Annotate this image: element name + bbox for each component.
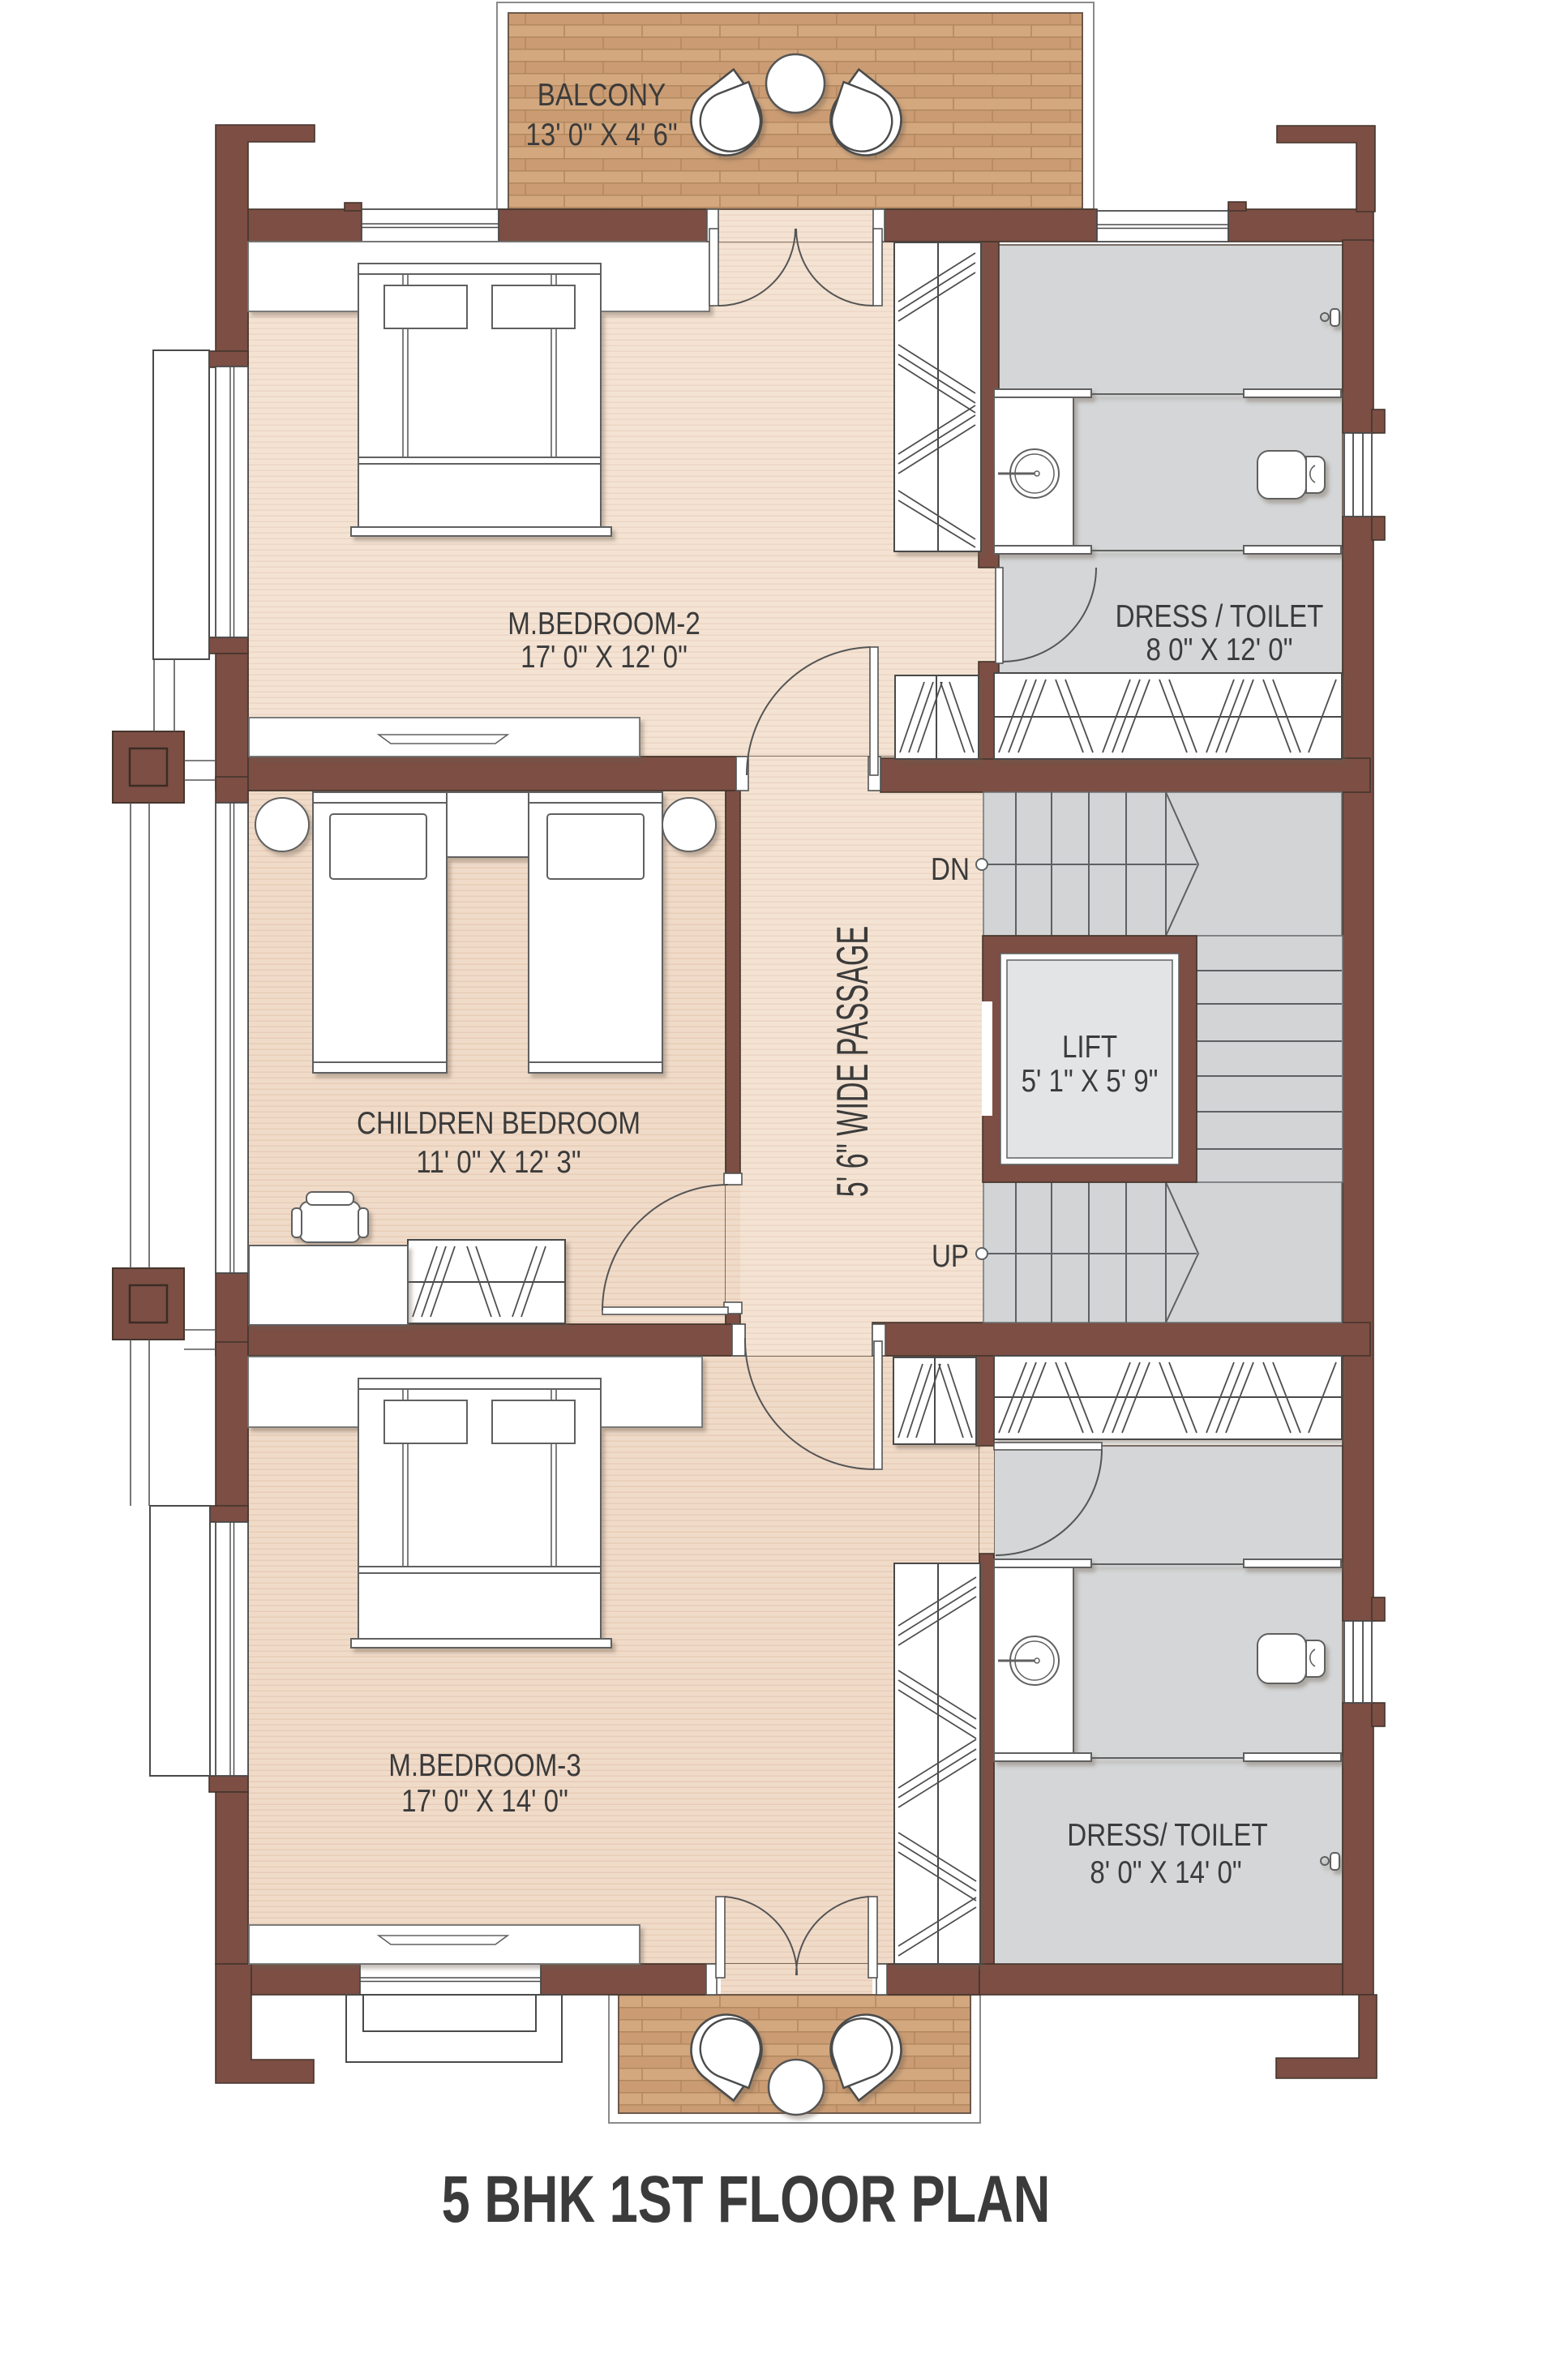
svg-text:DRESS/ TOILET: DRESS/ TOILET <box>1067 1816 1267 1852</box>
svg-text:CHILDREN BEDROOM: CHILDREN BEDROOM <box>357 1104 640 1140</box>
svg-text:5' 6" WIDE PASSAGE: 5' 6" WIDE PASSAGE <box>828 926 877 1197</box>
svg-text:DN: DN <box>931 851 970 886</box>
svg-text:5 BHK 1ST FLOOR PLAN: 5 BHK 1ST FLOOR PLAN <box>442 2162 1051 2236</box>
svg-text:BALCONY: BALCONY <box>538 76 666 112</box>
svg-text:LIFT: LIFT <box>1062 1028 1117 1064</box>
svg-text:8' 0" X 14' 0": 8' 0" X 14' 0" <box>1090 1854 1241 1889</box>
svg-text:UP: UP <box>932 1237 969 1273</box>
svg-text:11' 0" X 12' 3": 11' 0" X 12' 3" <box>416 1143 581 1179</box>
svg-text:17' 0" X 14' 0": 17' 0" X 14' 0" <box>401 1782 568 1818</box>
svg-text:5' 1" X 5' 9": 5' 1" X 5' 9" <box>1022 1062 1159 1098</box>
svg-text:8 0" X 12' 0": 8 0" X 12' 0" <box>1146 631 1293 667</box>
svg-text:M.BEDROOM-3: M.BEDROOM-3 <box>388 1747 581 1782</box>
svg-text:M.BEDROOM-2: M.BEDROOM-2 <box>508 605 700 641</box>
svg-text:17' 0" X 12' 0": 17' 0" X 12' 0" <box>521 638 688 674</box>
svg-text:DRESS / TOILET: DRESS / TOILET <box>1116 598 1324 633</box>
svg-text:13' 0" X 4' 6": 13' 0" X 4' 6" <box>525 116 677 152</box>
